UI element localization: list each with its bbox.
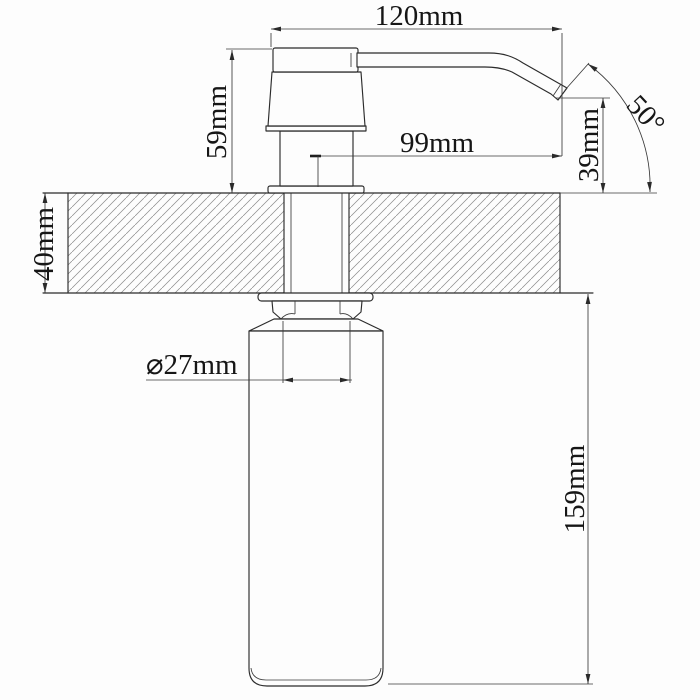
dim-27-label: ⌀27mm [146,349,238,381]
dim-39-arrow-bottom [601,183,606,193]
bottle [249,319,383,686]
dim-pump-height: 59mm [201,49,272,193]
dim-40-arrow-bottom [43,283,48,293]
mounting-nut [272,301,362,319]
dim-bottle-depth: 159mm [388,294,593,684]
countertop-hatch-right [349,193,560,293]
dim-159-label: 159mm [559,444,591,533]
pump-body-lip [266,126,366,131]
dim-59-arrow-bottom [230,183,235,193]
bottle-body [249,331,383,686]
technical-drawing-page: 120mm 59mm 99mm 39mm 50° 40mm [0,0,700,700]
spout [351,53,567,100]
countertop-hatch-left [68,193,284,293]
dim-120-arrow-right [552,27,562,32]
dim-159-arrow-bottom [586,674,591,684]
dim-99-label: 99mm [400,127,475,159]
dim-59-label: 59mm [201,85,233,160]
dim-50-arrow-bottom [647,182,652,192]
dim-50-label: 50° [620,89,671,141]
dim-40-arrow-top [43,193,48,203]
dim-120-arrow-left [271,27,281,32]
dim-50-tip-extension [565,63,589,90]
dim-counter-thickness: 40mm [28,193,60,293]
bottle-shoulder [249,319,383,331]
base-flange [268,186,364,193]
mounting-washer [258,293,373,301]
countertop-section [43,193,657,293]
pump-head [266,48,366,193]
dim-159-arrow-top [586,294,591,304]
spout-tube [357,53,567,100]
dim-39-label: 39mm [573,108,605,183]
drawing-canvas: 120mm 59mm 99mm 39mm 50° 40mm [0,0,700,700]
pump-body [268,72,365,126]
dim-39-arrow-top [601,98,606,108]
dim-120-label: 120mm [375,0,464,32]
pump-neck [280,131,353,186]
shank-body [284,193,349,293]
dim-99-arrow-right [552,154,562,159]
pump-cap [273,48,358,72]
dim-outlet-height: 39mm [556,98,610,193]
dim-40-label: 40mm [28,207,60,282]
dim-59-arrow-top [230,50,235,60]
